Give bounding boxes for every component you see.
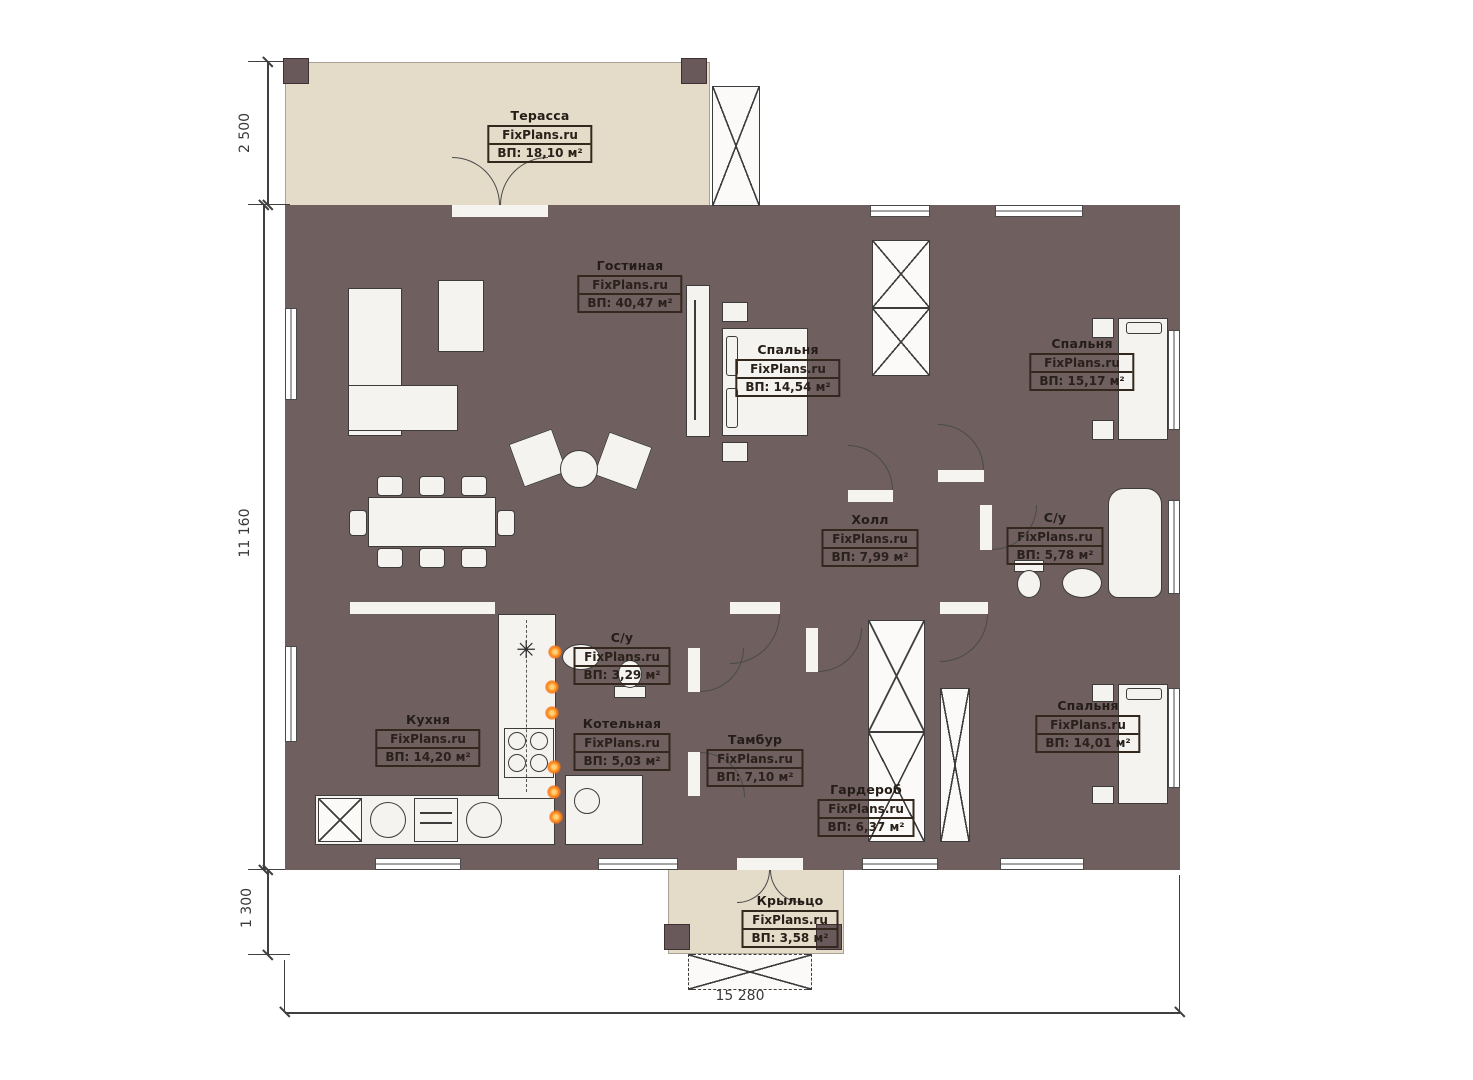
sink xyxy=(1062,568,1102,598)
brand-text: FixPlans.ru xyxy=(819,801,912,817)
terrace-glazing xyxy=(712,86,760,206)
toilet-bowl xyxy=(1017,570,1041,598)
brand-text: FixPlans.ru xyxy=(579,277,680,293)
room-title: С/у xyxy=(573,630,670,645)
tambour-door-opening xyxy=(730,602,780,614)
wardrobe-cabinet xyxy=(868,620,925,732)
sofa-seat xyxy=(348,385,458,431)
dining-chair xyxy=(461,548,487,568)
window xyxy=(285,646,297,742)
bedroom2-door-opening xyxy=(938,470,984,482)
dishwasher xyxy=(318,798,362,842)
tv-stand xyxy=(686,285,710,437)
room-label-bedroom1: Спальня FixPlans.ru ВП: 14,54 м² xyxy=(735,342,840,397)
room-label-hall: Холл FixPlans.ru ВП: 7,99 м² xyxy=(821,512,918,567)
dining-chair xyxy=(377,548,403,568)
room-info-box: FixPlans.ru ВП: 14,20 м² xyxy=(375,729,480,767)
brand-text: FixPlans.ru xyxy=(489,127,590,143)
brand-text: FixPlans.ru xyxy=(743,912,836,928)
wardrobe-door-opening xyxy=(806,628,818,672)
dim-label-house-height: 11 160 xyxy=(237,498,253,568)
side-table xyxy=(560,450,598,488)
brand-text: FixPlans.ru xyxy=(1037,717,1138,733)
room-label-bathroom1: С/у FixPlans.ru ВП: 5,78 м² xyxy=(1006,510,1103,565)
room-info-box: FixPlans.ru ВП: 40,47 м² xyxy=(577,275,682,313)
room-area: ВП: 7,99 м² xyxy=(823,547,916,565)
porch-steps xyxy=(688,954,812,990)
dining-chair xyxy=(377,476,403,496)
room-label-bathroom2: С/у FixPlans.ru ВП: 3,29 м² xyxy=(573,630,670,685)
room-area: ВП: 6,37 м² xyxy=(819,817,912,835)
dim-line-house-width xyxy=(285,1012,1180,1014)
window xyxy=(995,205,1083,217)
room-label-bedroom2: Спальня FixPlans.ru ВП: 15,17 м² xyxy=(1029,336,1134,391)
tv-screen xyxy=(694,300,696,420)
room-area: ВП: 18,10 м² xyxy=(489,143,590,161)
room-label-terrace: Терасса FixPlans.ru ВП: 18,10 м² xyxy=(487,108,592,163)
window xyxy=(285,308,297,400)
fridge-snowflake-icon: ✳ xyxy=(516,638,536,662)
oven-rack xyxy=(420,812,452,814)
window xyxy=(375,858,461,870)
room-label-bedroom3: Спальня FixPlans.ru ВП: 14,01 м² xyxy=(1035,698,1140,753)
wall-living-bedroom1 xyxy=(710,217,722,602)
room-info-box: FixPlans.ru ВП: 15,17 м² xyxy=(1029,353,1134,391)
dining-chair xyxy=(497,510,515,536)
room-info-box: FixPlans.ru ВП: 5,03 м² xyxy=(573,733,670,771)
nightstand xyxy=(722,302,748,322)
room-info-box: FixPlans.ru ВП: 7,10 м² xyxy=(706,749,803,787)
terrace-post xyxy=(283,58,309,84)
room-area: ВП: 15,17 м² xyxy=(1031,371,1132,389)
room-area: ВП: 7,10 м² xyxy=(708,767,801,785)
room-label-tambour: Тамбур FixPlans.ru ВП: 7,10 м² xyxy=(706,732,803,787)
room-title: Кухня xyxy=(375,712,480,727)
dim-label-house-width: 15 280 xyxy=(685,988,795,1004)
room-title: Крыльцо xyxy=(741,893,838,908)
room-info-box: FixPlans.ru ВП: 6,37 м² xyxy=(817,799,914,837)
pipe-marker-icon xyxy=(549,810,563,824)
boiler-dial xyxy=(574,788,600,814)
room-title: Спальня xyxy=(1035,698,1140,713)
room-label-wardrobe: Гардероб FixPlans.ru ВП: 6,37 м² xyxy=(817,782,914,837)
oven-rack xyxy=(420,822,452,824)
dim-line-porch xyxy=(267,870,269,955)
window xyxy=(598,858,678,870)
room-area: ВП: 5,78 м² xyxy=(1008,545,1101,563)
room-title: Холл xyxy=(821,512,918,527)
dining-chair xyxy=(419,476,445,496)
room-area: ВП: 3,29 м² xyxy=(575,665,668,683)
closet-wardrobe xyxy=(872,240,930,308)
stove-burner xyxy=(530,754,548,772)
dim-line-terrace xyxy=(267,62,269,205)
room-info-box: FixPlans.ru ВП: 18,10 м² xyxy=(487,125,592,163)
terrace-door-opening xyxy=(452,205,548,217)
room-label-boiler: Котельная FixPlans.ru ВП: 5,03 м² xyxy=(573,716,670,771)
room-title: Терасса xyxy=(487,108,592,123)
room-area: ВП: 40,47 м² xyxy=(579,293,680,311)
coffee-table xyxy=(438,280,484,352)
brand-text: FixPlans.ru xyxy=(1008,529,1101,545)
brand-text: FixPlans.ru xyxy=(823,531,916,547)
room-info-box: FixPlans.ru ВП: 14,01 м² xyxy=(1035,715,1140,753)
terrace-post xyxy=(681,58,707,84)
dining-chair xyxy=(461,476,487,496)
brand-text: FixPlans.ru xyxy=(575,649,668,665)
oven xyxy=(414,798,458,842)
pipe-marker-icon xyxy=(548,645,562,659)
wall-wardrobe-bedroom3 xyxy=(925,614,937,858)
porch-door-opening xyxy=(737,858,803,870)
kitchen-opening xyxy=(350,602,495,614)
kitchen-sink xyxy=(466,802,502,838)
room-label-kitchen: Кухня FixPlans.ru ВП: 14,20 м² xyxy=(375,712,480,767)
stove-burner xyxy=(508,754,526,772)
stove-burner xyxy=(530,732,548,750)
room-area: ВП: 14,01 м² xyxy=(1037,733,1138,751)
window xyxy=(862,858,938,870)
pipe-marker-icon xyxy=(547,760,561,774)
room-info-box: FixPlans.ru ВП: 3,58 м² xyxy=(741,910,838,948)
room-area: ВП: 3,58 м² xyxy=(743,928,836,946)
window xyxy=(870,205,930,217)
room-area: ВП: 5,03 м² xyxy=(575,751,668,769)
nightstand xyxy=(722,442,748,462)
room-area: ВП: 14,54 м² xyxy=(737,377,838,395)
porch-post xyxy=(664,924,690,950)
dining-table xyxy=(368,497,496,547)
room-title: Тамбур xyxy=(706,732,803,747)
brand-text: FixPlans.ru xyxy=(377,731,478,747)
window xyxy=(1168,330,1180,430)
wall-bath2-boiler xyxy=(560,698,688,710)
bathtub xyxy=(1108,488,1162,598)
dining-chair xyxy=(349,510,367,536)
room-label-living: Гостиная FixPlans.ru ВП: 40,47 м² xyxy=(577,258,682,313)
pillow xyxy=(1126,322,1162,334)
room-info-box: FixPlans.ru ВП: 7,99 м² xyxy=(821,529,918,567)
nightstand xyxy=(1092,786,1114,804)
brand-text: FixPlans.ru xyxy=(1031,355,1132,371)
room-title: Спальня xyxy=(735,342,840,357)
bathroom1-door-opening xyxy=(980,505,992,550)
room-title: Гардероб xyxy=(817,782,914,797)
boiler-door-opening xyxy=(688,752,700,796)
dim-label-terrace-depth: 2 500 xyxy=(237,103,253,163)
window xyxy=(1000,858,1084,870)
bathroom2-door-opening xyxy=(688,648,700,692)
room-label-porch: Крыльцо FixPlans.ru ВП: 3,58 м² xyxy=(741,893,838,948)
washing-machine xyxy=(370,802,406,838)
floor-plan: 2 500 11 160 1 300 15 280 xyxy=(0,0,1473,1080)
pipe-marker-icon xyxy=(547,785,561,799)
window xyxy=(1168,688,1180,788)
dining-chair xyxy=(419,548,445,568)
brand-text: FixPlans.ru xyxy=(575,735,668,751)
room-info-box: FixPlans.ru ВП: 5,78 м² xyxy=(1006,527,1103,565)
brand-text: FixPlans.ru xyxy=(708,751,801,767)
nightstand xyxy=(1092,318,1114,338)
room-title: Гостиная xyxy=(577,258,682,273)
dim-ext-line xyxy=(1179,875,1180,1012)
window xyxy=(1168,500,1180,594)
room-title: С/у xyxy=(1006,510,1103,525)
dim-label-porch-depth: 1 300 xyxy=(239,878,255,938)
room-title: Спальня xyxy=(1029,336,1134,351)
dim-line-house-height xyxy=(263,205,265,870)
stove-burner xyxy=(508,732,526,750)
room-area: ВП: 14,20 м² xyxy=(377,747,478,765)
brand-text: FixPlans.ru xyxy=(737,361,838,377)
wall-bedroom1-hall xyxy=(722,490,930,502)
pipe-marker-icon xyxy=(545,680,559,694)
room-info-box: FixPlans.ru ВП: 3,29 м² xyxy=(573,647,670,685)
pipe-marker-icon xyxy=(545,706,559,720)
closet-wardrobe xyxy=(872,308,930,376)
dim-ext-line xyxy=(284,960,285,1012)
room-title: Котельная xyxy=(573,716,670,731)
nightstand xyxy=(1092,420,1114,440)
room-info-box: FixPlans.ru ВП: 14,54 м² xyxy=(735,359,840,397)
bedroom3-door-opening xyxy=(940,602,988,614)
bedroom1-door-opening xyxy=(848,490,893,502)
bedroom3-wardrobe xyxy=(940,688,970,842)
